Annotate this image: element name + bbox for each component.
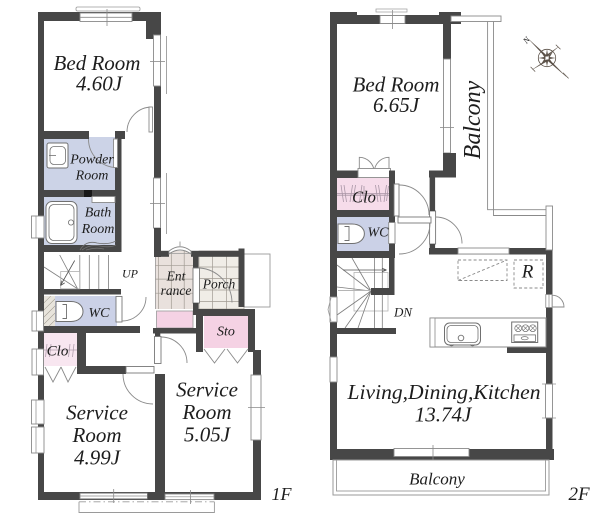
svg-text:UP: UP (122, 267, 139, 281)
svg-text:R: R (521, 262, 534, 283)
svg-text:6.65J: 6.65J (373, 93, 421, 117)
svg-text:DN: DN (393, 305, 413, 320)
svg-text:1F: 1F (272, 484, 293, 504)
svg-text:Balcony: Balcony (409, 470, 465, 489)
svg-text:Balcony: Balcony (460, 80, 486, 159)
svg-text:Living,Dining,Kitchen: Living,Dining,Kitchen (346, 380, 540, 404)
svg-text:Bath: Bath (85, 206, 111, 221)
svg-text:Sto: Sto (217, 325, 235, 340)
svg-text:Room: Room (75, 169, 109, 184)
svg-text:Porch: Porch (202, 277, 236, 292)
svg-text:rance: rance (161, 283, 192, 298)
svg-text:5.05J: 5.05J (184, 423, 232, 447)
svg-text:Service: Service (176, 378, 238, 402)
svg-text:Room: Room (81, 222, 115, 237)
svg-text:WC: WC (89, 306, 111, 321)
svg-text:2F: 2F (568, 484, 590, 505)
svg-text:Clo: Clo (352, 187, 376, 206)
svg-text:Powder: Powder (69, 153, 114, 168)
svg-text:WC: WC (368, 226, 390, 241)
svg-text:13.74J: 13.74J (415, 403, 473, 427)
svg-text:Room: Room (72, 423, 122, 447)
svg-text:Room: Room (182, 400, 232, 424)
svg-text:4.99J: 4.99J (74, 446, 122, 470)
svg-text:4.60J: 4.60J (76, 72, 124, 96)
svg-text:Service: Service (66, 401, 128, 425)
svg-text:Ent: Ent (166, 269, 187, 284)
svg-text:Clo: Clo (47, 344, 69, 360)
